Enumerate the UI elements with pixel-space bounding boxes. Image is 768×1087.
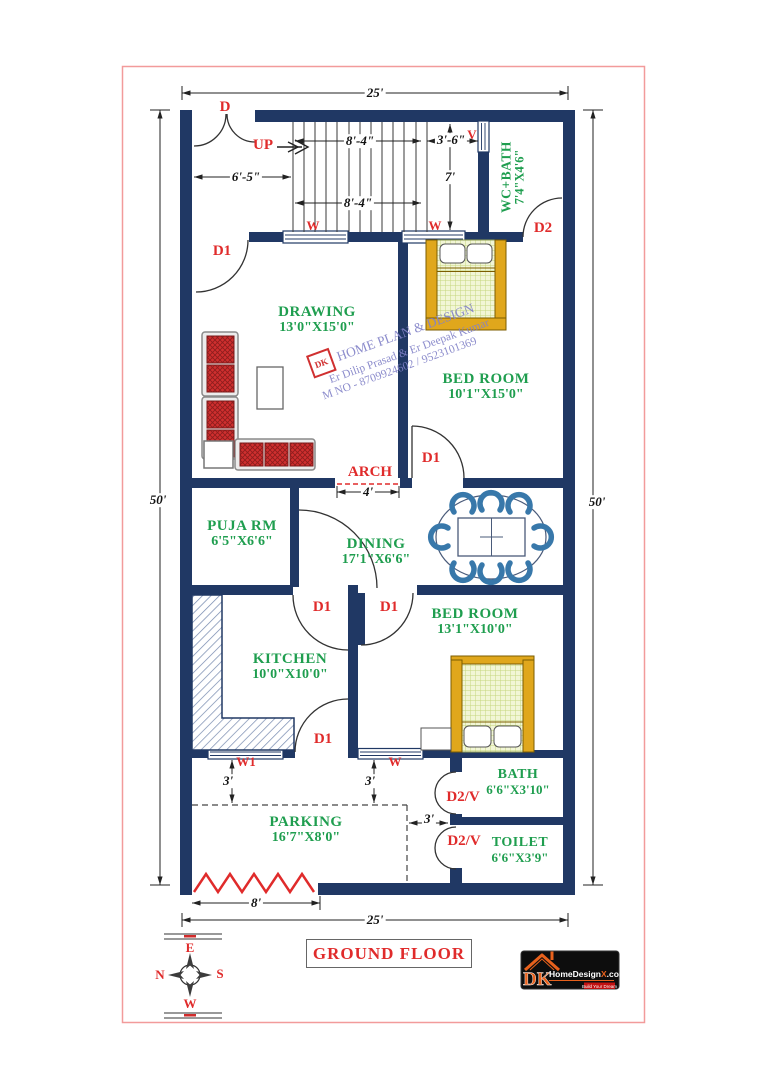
- door-label-main: D: [220, 100, 231, 116]
- stair-up-label: UP: [253, 138, 273, 154]
- sheet-title: GROUND FLOOR: [306, 939, 472, 968]
- window-label-stair-left: W: [307, 219, 320, 233]
- dim-plot-height-right: 50': [587, 495, 608, 509]
- dim-stair-landing: 3'-6": [435, 133, 467, 147]
- dim-stair-run-top: 8'-4": [344, 134, 376, 148]
- door-label-bedroom1: D1: [422, 451, 440, 467]
- logo-tagline: Build Your Dream: [582, 984, 617, 989]
- arch-label: ARCH: [348, 465, 392, 481]
- door-label-drawing: D1: [213, 244, 231, 260]
- window-label-stair-right: W: [429, 219, 442, 233]
- bed-2: [451, 656, 534, 752]
- window-label-vent: V: [467, 128, 476, 142]
- dim-arch-width: 4': [361, 485, 375, 499]
- room-label-bedroom2: BED ROOM 13'1"X10'0": [432, 607, 519, 637]
- dk-logo: DK HomeDesignX.com Build Your Dream: [521, 951, 627, 990]
- dining-set: [431, 493, 552, 583]
- door-label-kitchen-bottom: D1: [314, 732, 332, 748]
- dim-gate-width: 8': [249, 896, 263, 910]
- dim-stair-run-bottom: 8'-4": [342, 196, 374, 210]
- dim-foyer-width: 6'-5": [230, 170, 262, 184]
- gate-zigzag: [194, 874, 314, 892]
- window-label-bedroom2: W: [389, 755, 402, 769]
- dim-stair-well: 7': [443, 170, 457, 184]
- logo-initials: DK: [523, 969, 552, 990]
- compass-west: W: [184, 997, 197, 1011]
- room-label-kitchen: KITCHEN 10'0"X10'0": [252, 652, 327, 682]
- door-label-kitchen-top: D1: [313, 600, 331, 616]
- room-label-bedroom1: BED ROOM 10'1"X15'0": [443, 372, 530, 402]
- room-label-wcbath: WC+BATH 7'4"X4'6": [499, 141, 526, 213]
- room-label-dining: DINING 17'1"X6'6": [342, 537, 410, 567]
- room-label-bath: BATH 6'6"X3'10": [486, 768, 550, 796]
- dimension-lines: [150, 86, 603, 927]
- door-label-bath: D2/V: [446, 790, 479, 806]
- room-label-puja: PUJA RM 6'5"X6'6": [207, 519, 277, 549]
- door-label-wcbath: D2: [534, 221, 552, 237]
- logo-brand: HomeDesignX.com: [549, 969, 627, 979]
- room-label-toilet: TOILET 6'6"X3'9": [491, 836, 548, 864]
- dim-bedroom-setback: 3': [363, 774, 377, 788]
- compass-south: S: [216, 967, 223, 981]
- door-label-bedroom2-top: D1: [380, 600, 398, 616]
- room-label-parking: PARKING 16'7"X8'0": [269, 815, 342, 845]
- door-label-toilet: D2/V: [447, 834, 480, 850]
- bedside-table: [421, 728, 451, 750]
- dim-plot-width-top: 25': [365, 86, 386, 100]
- dim-kitchen-setback: 3': [221, 774, 235, 788]
- room-label-drawing: DRAWING 13'0"X15'0": [278, 305, 356, 335]
- dim-plot-width-bottom: 25': [365, 913, 386, 927]
- compass-east: E: [186, 941, 195, 955]
- compass-north: N: [155, 968, 164, 982]
- floor-plan-page: DK HomeDesignX.com Build Your Dream 25' …: [0, 0, 768, 1087]
- dim-plot-height-left: 50': [148, 493, 169, 507]
- window-label-kitchen: W1: [236, 755, 256, 769]
- center-table: [257, 367, 283, 409]
- dim-bath-gap: 3': [422, 812, 436, 826]
